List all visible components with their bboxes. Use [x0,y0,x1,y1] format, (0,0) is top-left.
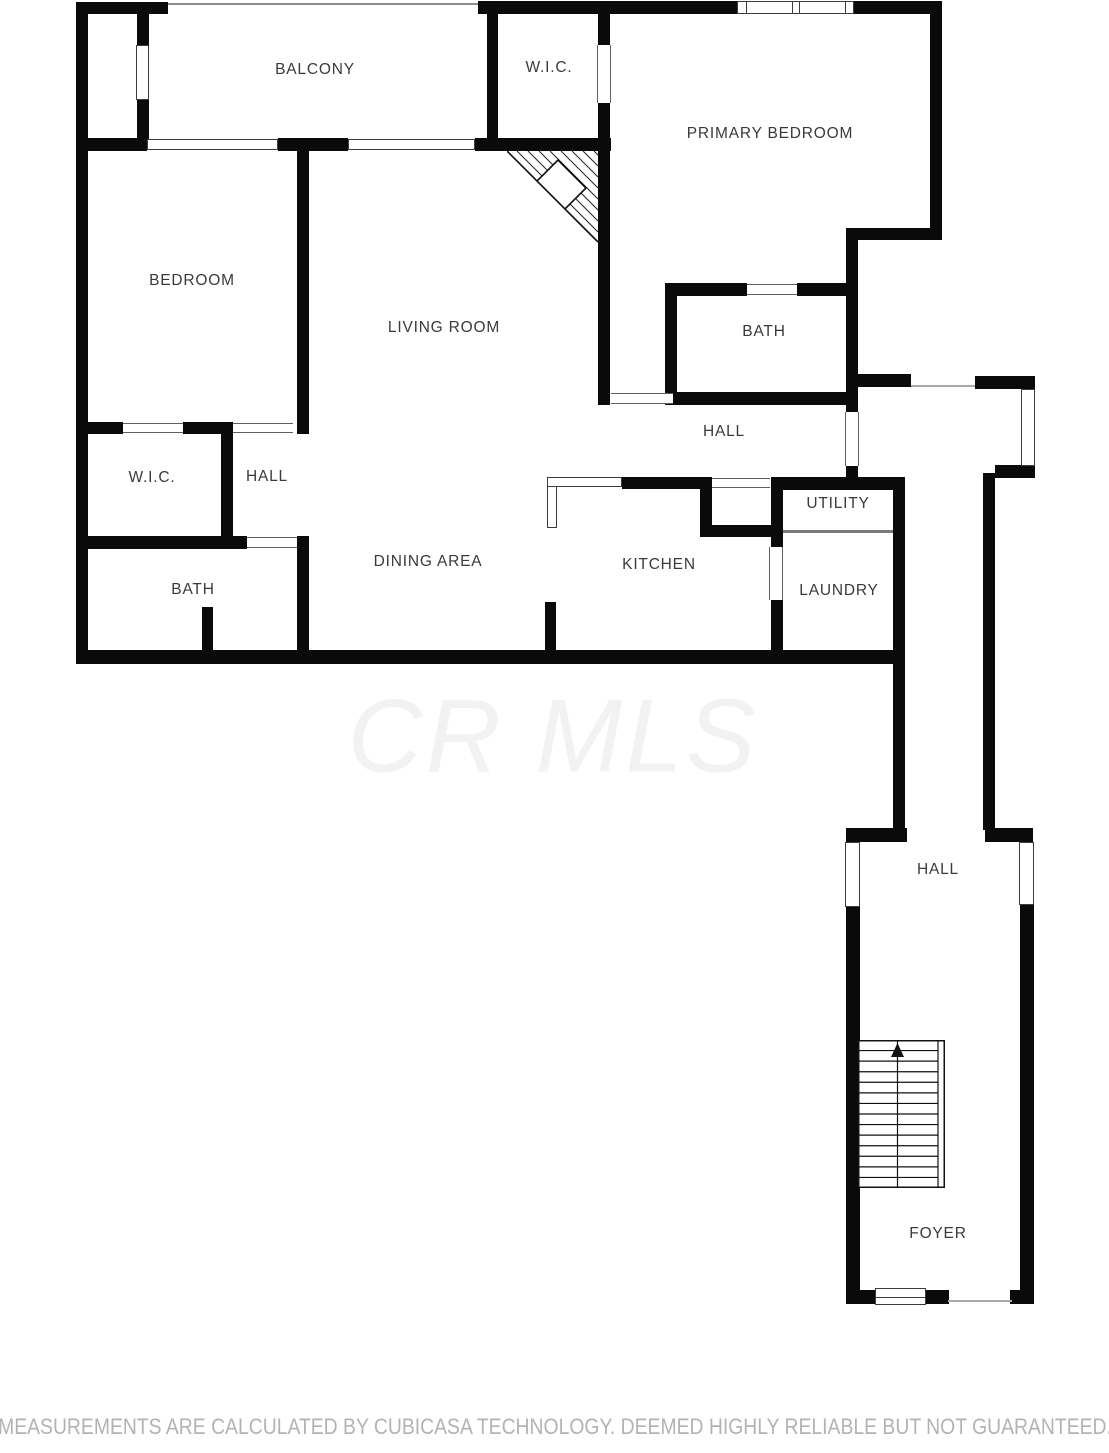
window-divider [746,2,747,13]
room-label-hall: HALL [246,468,288,486]
wall-segment [771,477,783,547]
window-divider [876,1297,925,1298]
wall-segment [1020,904,1034,1290]
wall-segment [622,477,712,489]
wall-segment [598,12,610,45]
thin-line [783,530,893,533]
wall-segment [665,283,747,296]
wall-segment [985,828,1033,842]
door-opening [247,537,297,548]
room-label-bedroom: BEDROOM [149,272,235,290]
wall-segment [846,1290,878,1304]
thin-line [168,3,478,5]
door-opening [233,423,293,433]
window-symbol [136,45,149,100]
door-opening [597,45,611,103]
wall-segment [1010,1290,1034,1304]
door-opening [712,478,770,488]
floorplan-canvas: CR MLS BALCONYW.I.C.PRIMARY BEDROOMBEDRO… [0,0,1109,1453]
wall-segment [846,828,907,842]
window-divider [792,2,793,13]
window-symbol [147,139,278,150]
door-opening [845,412,859,466]
room-label-hall: HALL [917,861,959,879]
disclaimer-text: MEASUREMENTS ARE CALCULATED BY CUBICASA … [0,1414,1109,1440]
wall-segment [221,422,233,549]
wall-segment [76,2,168,14]
window-symbol [1019,842,1034,905]
door-opening [611,393,673,404]
wall-segment [700,487,712,527]
room-label-living-room: LIVING ROOM [388,319,500,337]
room-label-dining-area: DINING AREA [374,553,483,571]
wall-segment [983,473,995,830]
wall-segment [76,536,247,549]
wall-segment [598,103,610,148]
wall-segment [673,392,846,405]
room-label-foyer: FOYER [909,1225,966,1243]
room-label-primary-bedroom: PRIMARY BEDROOM [687,125,853,143]
wall-segment [278,138,348,151]
wall-segment [700,525,772,537]
room-label-w-i-c: W.I.C. [526,59,573,77]
window-divider [799,2,800,13]
wall-segment [995,465,1035,478]
wall-segment [846,374,911,387]
room-label-bath: BATH [742,323,785,341]
room-label-bath: BATH [171,581,214,599]
wall-segment [297,536,309,664]
window-symbol [1021,389,1035,466]
wall-segment [202,607,213,652]
kitchen-counter [547,477,622,487]
wall-segment [924,1290,949,1304]
kitchen-counter [547,486,557,528]
wall-segment [797,283,846,296]
room-label-balcony: BALCONY [275,61,355,79]
wall-segment [771,600,783,650]
thin-line [948,1300,1012,1302]
window-symbol [875,1288,926,1305]
room-label-utility: UTILITY [806,495,869,513]
wall-segment [137,2,149,45]
wall-segment [930,2,942,240]
wall-segment [76,422,123,434]
door-opening [769,547,783,600]
wall-segment [487,12,498,140]
wall-segment [137,100,149,140]
wall-segment [76,2,88,664]
wall-segment [76,138,147,151]
watermark-text: CR MLS [348,678,759,797]
room-label-laundry: LAUNDRY [799,582,878,600]
door-opening [747,284,797,295]
wall-segment [665,283,677,405]
window-divider [845,2,846,13]
window-symbol [737,1,854,14]
wall-segment [975,376,1035,389]
room-label-hall: HALL [703,423,745,441]
window-symbol [845,842,860,907]
wall-segment [76,650,905,664]
staircase [858,1040,945,1188]
room-label-kitchen: KITCHEN [622,556,696,574]
wall-segment [846,228,942,240]
wall-segment [545,602,556,652]
door-opening [123,423,183,433]
under-stair-hatch [507,151,599,243]
wall-segment [297,138,309,434]
window-symbol [348,139,475,150]
room-label-w-i-c: W.I.C. [129,469,176,487]
wall-segment [478,1,942,14]
thin-line [911,385,975,387]
wall-segment [598,148,610,405]
wall-segment [772,477,903,490]
